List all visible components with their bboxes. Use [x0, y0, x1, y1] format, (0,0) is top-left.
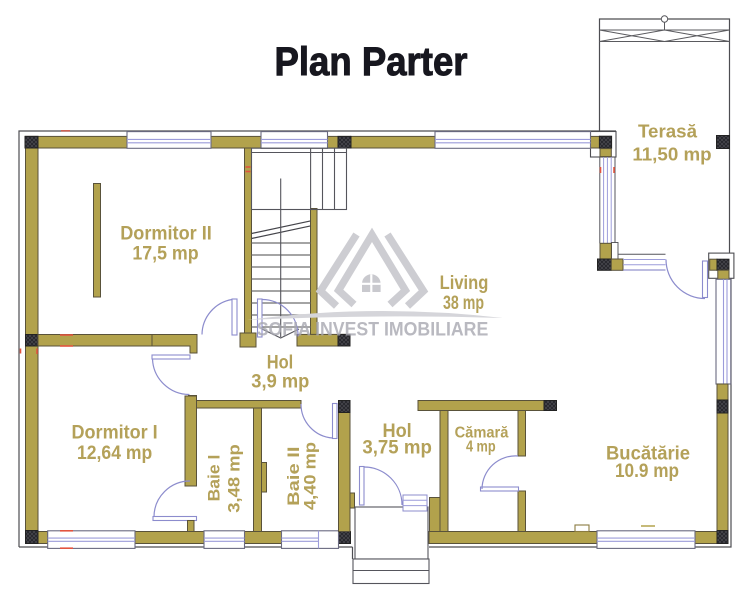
svg-text:SOFIA INVEST IMOBILIARE: SOFIA INVEST IMOBILIARE	[257, 319, 489, 340]
svg-text:3,48 mp: 3,48 mp	[225, 444, 244, 513]
svg-text:38 mp: 38 mp	[443, 293, 484, 314]
svg-text:Terasă: Terasă	[638, 122, 698, 142]
svg-text:Dormitor II: Dormitor II	[120, 223, 212, 244]
svg-text:12,64 mp: 12,64 mp	[77, 443, 152, 464]
svg-text:4 mp: 4 mp	[466, 439, 496, 456]
svg-text:4,40 mp: 4,40 mp	[301, 442, 320, 510]
svg-text:Living: Living	[440, 273, 489, 294]
svg-text:11,50 mp: 11,50 mp	[632, 144, 711, 164]
svg-text:3,9 mp: 3,9 mp	[251, 371, 309, 392]
svg-text:Dormitor I: Dormitor I	[72, 423, 158, 444]
svg-text:Baie I: Baie I	[205, 455, 224, 502]
svg-text:3,75 mp: 3,75 mp	[362, 438, 432, 459]
svg-text:17,5 mp: 17,5 mp	[132, 244, 198, 265]
svg-text:10.9 mp: 10.9 mp	[615, 461, 679, 482]
svg-text:Plan Parter: Plan Parter	[275, 40, 468, 84]
